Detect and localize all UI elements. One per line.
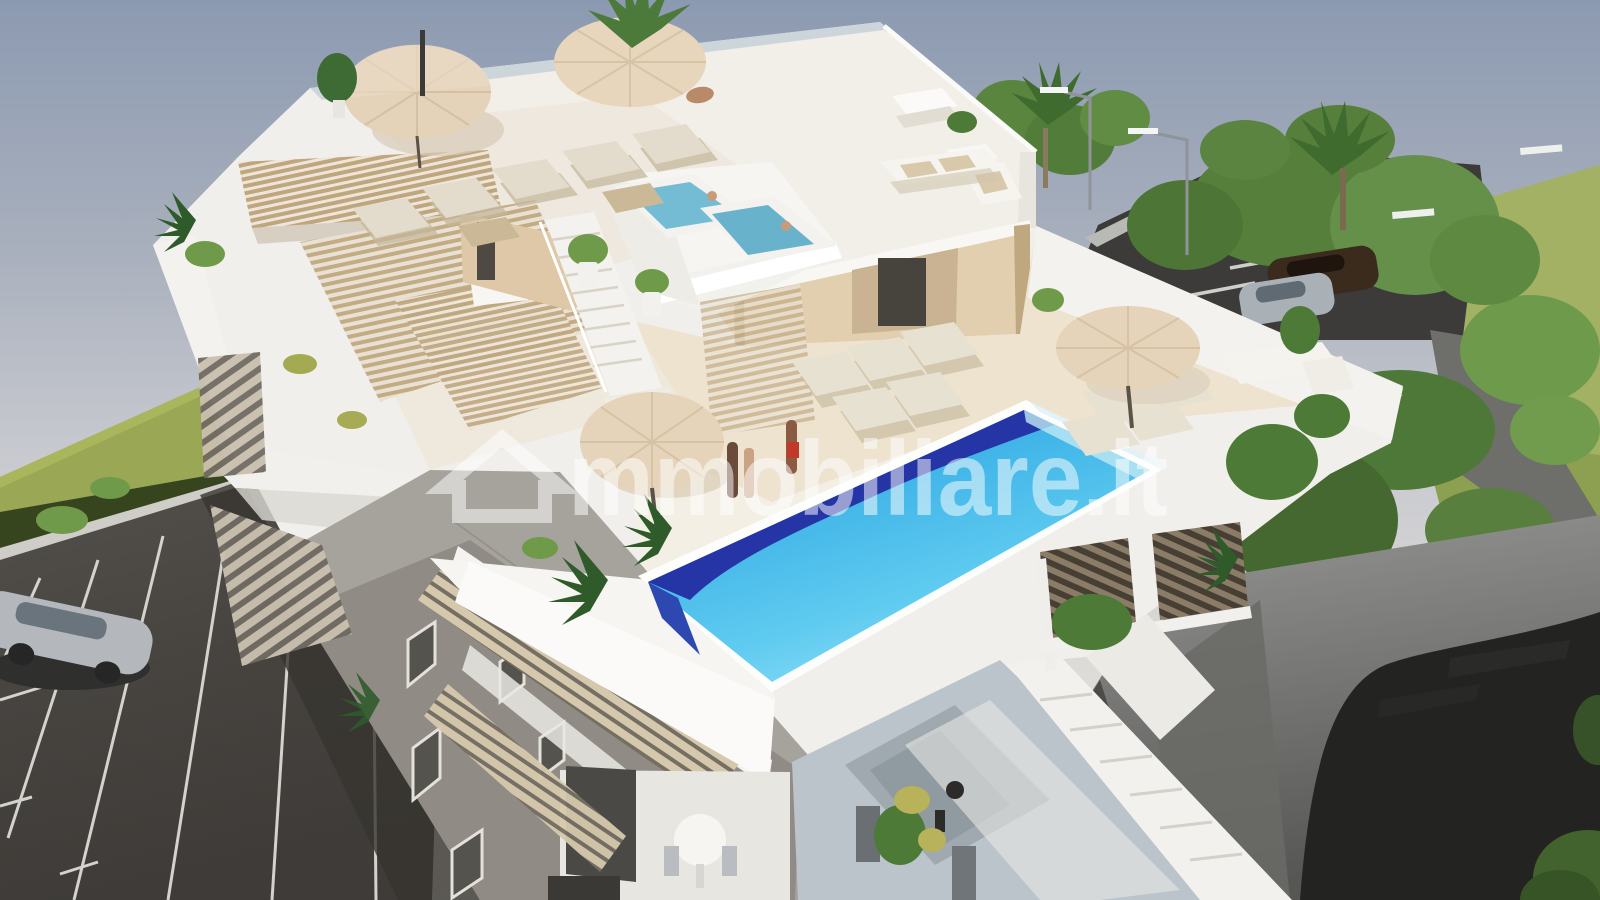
svg-text:mmobiliare.it: mmobiliare.it	[568, 420, 1168, 538]
